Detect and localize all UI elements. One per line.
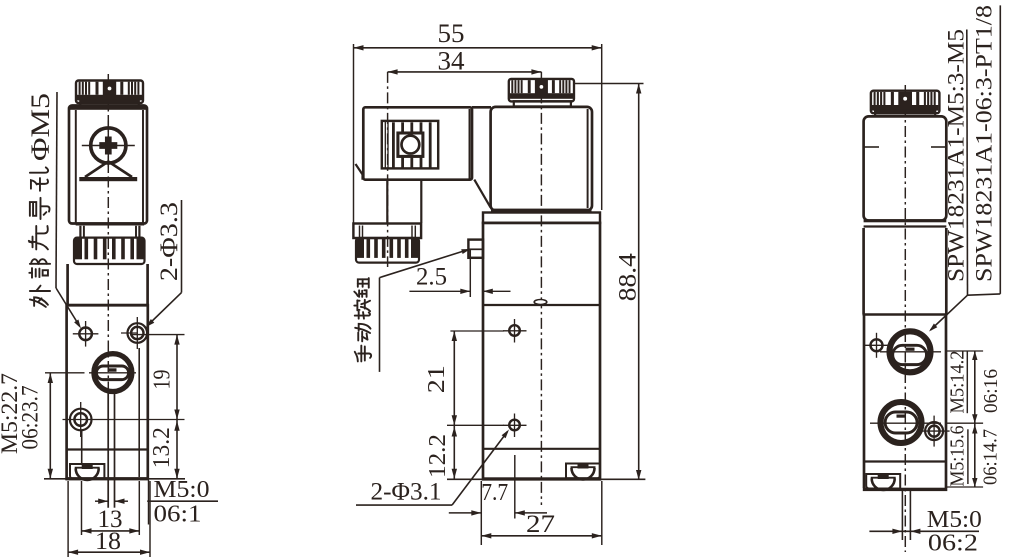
svg-text:7.7: 7.7: [481, 480, 508, 506]
svg-text:21: 21: [424, 365, 450, 393]
svg-text:19: 19: [150, 370, 176, 390]
svg-text:06:1: 06:1: [154, 502, 202, 528]
svg-text:ΦM5: ΦM5: [26, 93, 55, 161]
svg-text:55: 55: [438, 19, 465, 48]
svg-text:M5:15.6: M5:15.6: [947, 426, 969, 487]
svg-text:06:2: 06:2: [928, 530, 978, 556]
svg-text:06:23.7: 06:23.7: [17, 386, 42, 450]
svg-text:06:16: 06:16: [980, 369, 1002, 413]
svg-text:SPW18231A1-M5:3-M5: SPW18231A1-M5:3-M5: [943, 29, 968, 282]
svg-text:M5:14.2: M5:14.2: [946, 351, 968, 414]
svg-text:88.4: 88.4: [615, 253, 642, 302]
svg-text:18: 18: [95, 528, 121, 555]
svg-text:M5:0: M5:0: [927, 507, 982, 533]
svg-text:SPW18231A1-06:3-PT1/8: SPW18231A1-06:3-PT1/8: [972, 5, 997, 282]
svg-text:13.2: 13.2: [149, 427, 175, 468]
svg-text:34: 34: [438, 47, 465, 76]
svg-text:2.5: 2.5: [416, 264, 447, 291]
svg-text:27: 27: [526, 511, 555, 538]
svg-text:2-Φ3.1: 2-Φ3.1: [371, 479, 442, 506]
svg-text:M5:0: M5:0: [154, 477, 210, 503]
svg-text:12.2: 12.2: [425, 434, 451, 478]
svg-text:06:14.7: 06:14.7: [979, 429, 1001, 485]
svg-text:2-Φ3.3: 2-Φ3.3: [156, 202, 183, 281]
